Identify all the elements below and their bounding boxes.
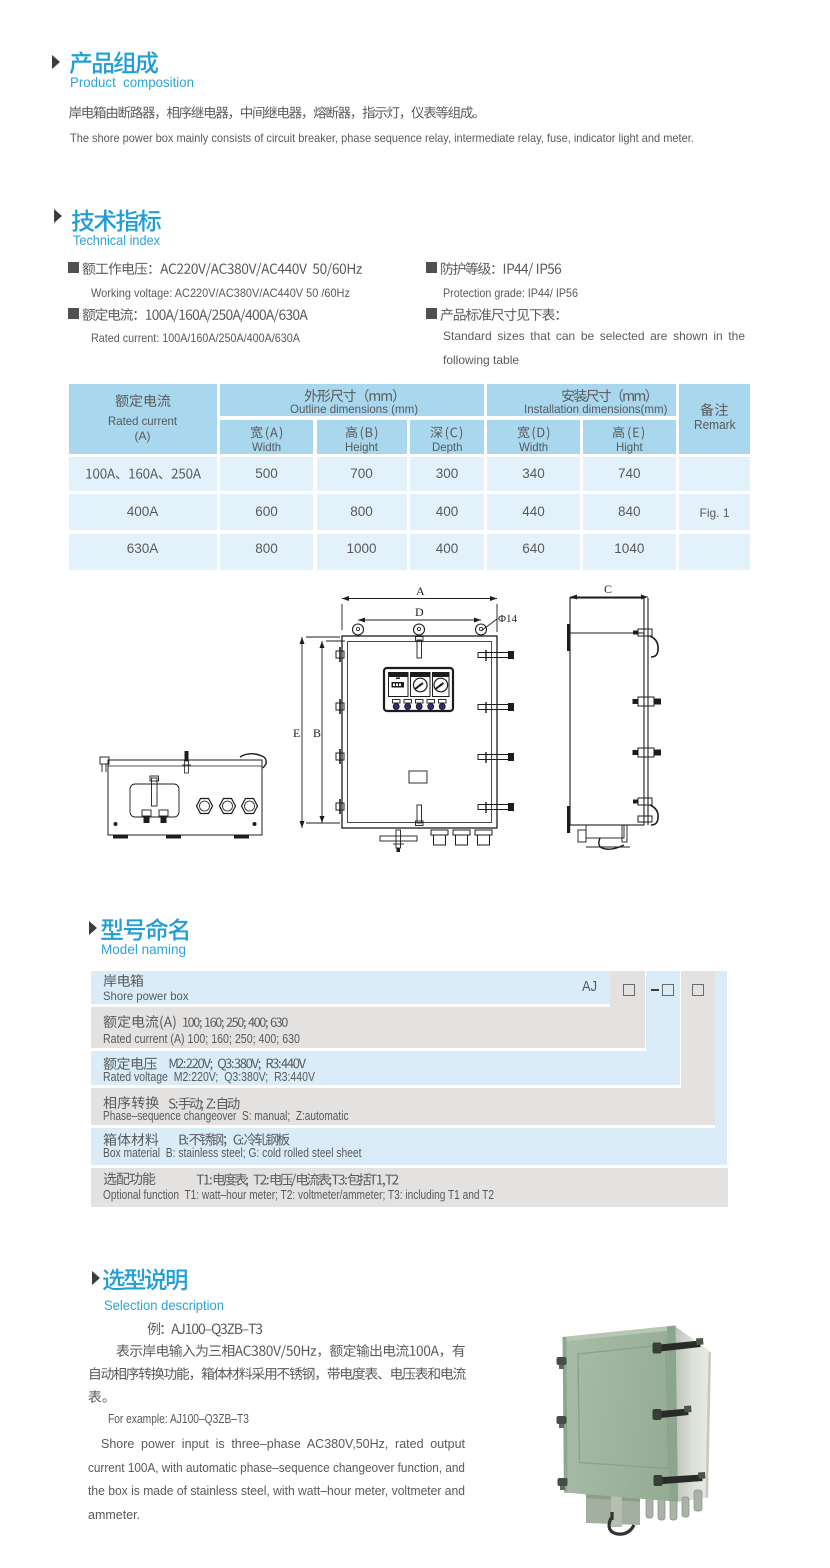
svg-text:B: B: [313, 726, 321, 740]
svg-text:E: E: [293, 726, 300, 740]
svg-text:Φ14: Φ14: [498, 613, 518, 625]
svg-text:C: C: [604, 582, 612, 596]
svg-text:A: A: [416, 584, 425, 598]
svg-text:D: D: [415, 605, 424, 619]
